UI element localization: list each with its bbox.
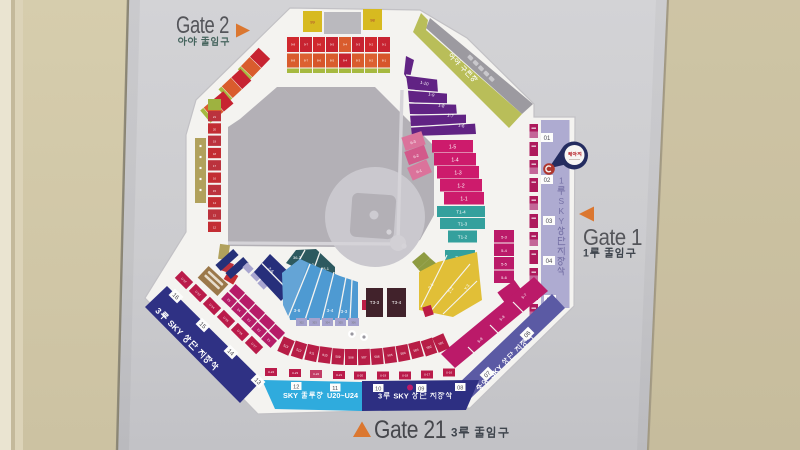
svg-text:1-4: 1-4 <box>451 158 458 164</box>
svg-text:U-17: U-17 <box>424 373 431 377</box>
svg-text:8-5: 8-5 <box>330 59 334 63</box>
svg-text:3-6: 3-6 <box>294 308 301 313</box>
svg-text:Gate 2: Gate 2 <box>176 12 229 39</box>
svg-text:10: 10 <box>375 387 381 393</box>
svg-text:8-1: 8-1 <box>382 59 386 63</box>
svg-text:98: 98 <box>370 18 375 23</box>
svg-text:306: 306 <box>351 320 356 324</box>
svg-text:U-16: U-16 <box>446 371 453 375</box>
svg-text:U-22: U-22 <box>313 372 320 376</box>
svg-text:305: 305 <box>338 320 343 324</box>
svg-text:01: 01 <box>544 136 551 142</box>
svg-text:9-3: 9-3 <box>356 43 360 47</box>
svg-text:8-2: 8-2 <box>369 59 373 63</box>
svg-text:T1-3: T1-3 <box>458 222 468 227</box>
svg-text:SKY: SKY <box>393 392 408 401</box>
svg-text:509: 509 <box>335 355 341 359</box>
svg-text:8-7: 8-7 <box>304 59 308 63</box>
svg-text:U-19: U-19 <box>380 374 387 378</box>
svg-text:3-3: 3-3 <box>341 309 348 314</box>
svg-text:U-18: U-18 <box>402 374 409 378</box>
svg-text:9-5: 9-5 <box>330 43 334 47</box>
svg-text:9-6: 9-6 <box>317 43 321 47</box>
svg-text:8-6: 8-6 <box>317 59 321 63</box>
svg-text:1-3: 1-3 <box>454 171 461 177</box>
svg-text:02: 02 <box>544 178 551 184</box>
svg-text:8-3: 8-3 <box>356 59 360 63</box>
svg-text:99: 99 <box>310 20 315 25</box>
svg-text:04: 04 <box>546 259 553 265</box>
svg-text:302: 302 <box>299 320 304 324</box>
svg-text:1-2: 1-2 <box>457 184 464 190</box>
svg-text:510: 510 <box>322 353 328 358</box>
svg-text:9-1: 9-1 <box>382 43 386 47</box>
svg-text:1-1: 1-1 <box>460 197 467 203</box>
svg-text:U-21: U-21 <box>336 373 343 377</box>
svg-text:5-6: 5-6 <box>501 275 508 280</box>
svg-text:304: 304 <box>325 320 330 324</box>
svg-text:508: 508 <box>348 355 353 359</box>
svg-text:505: 505 <box>387 353 393 358</box>
svg-text:U-20: U-20 <box>357 374 364 378</box>
svg-text:5-5: 5-5 <box>501 262 508 267</box>
svg-text:S: S <box>559 196 565 206</box>
svg-text:5-4: 5-4 <box>501 248 508 253</box>
svg-text:08: 08 <box>457 386 463 392</box>
svg-text:1: 1 <box>559 176 564 186</box>
svg-text:U-24: U-24 <box>268 370 275 374</box>
svg-text:Gate 1: Gate 1 <box>583 224 642 250</box>
svg-text:9-4: 9-4 <box>343 43 347 47</box>
svg-text:SKY: SKY <box>283 391 298 400</box>
svg-text:8-8: 8-8 <box>291 59 295 63</box>
svg-text:K: K <box>559 206 565 216</box>
svg-text:03: 03 <box>546 219 553 225</box>
svg-text:9-2: 9-2 <box>369 43 373 47</box>
svg-text:9-7: 9-7 <box>304 43 308 47</box>
svg-text:3: 3 <box>378 392 382 401</box>
svg-text:09: 09 <box>418 387 424 393</box>
svg-text:1: 1 <box>583 248 589 260</box>
svg-text:Gate 21: Gate 21 <box>374 416 446 444</box>
svg-text:3: 3 <box>451 427 458 440</box>
svg-text:11: 11 <box>332 386 338 392</box>
svg-text:T1-2: T1-2 <box>458 235 468 240</box>
svg-text:12: 12 <box>293 385 299 391</box>
svg-text:U20~U24: U20~U24 <box>327 391 359 400</box>
svg-text:9-8: 9-8 <box>291 43 295 47</box>
svg-text:506: 506 <box>374 355 380 359</box>
svg-text:507: 507 <box>361 355 367 359</box>
svg-text:T3-3: T3-3 <box>370 300 380 305</box>
svg-text:8-4: 8-4 <box>343 59 347 63</box>
svg-text:T1-4: T1-4 <box>456 210 466 215</box>
svg-text:1-5: 1-5 <box>449 145 456 151</box>
svg-text:3-4: 3-4 <box>327 308 334 313</box>
svg-text:Y: Y <box>559 216 565 226</box>
svg-text:T3-4: T3-4 <box>392 300 402 305</box>
svg-text:303: 303 <box>312 320 317 324</box>
svg-text:5-3: 5-3 <box>501 235 508 240</box>
svg-text:U-23: U-23 <box>292 371 299 375</box>
